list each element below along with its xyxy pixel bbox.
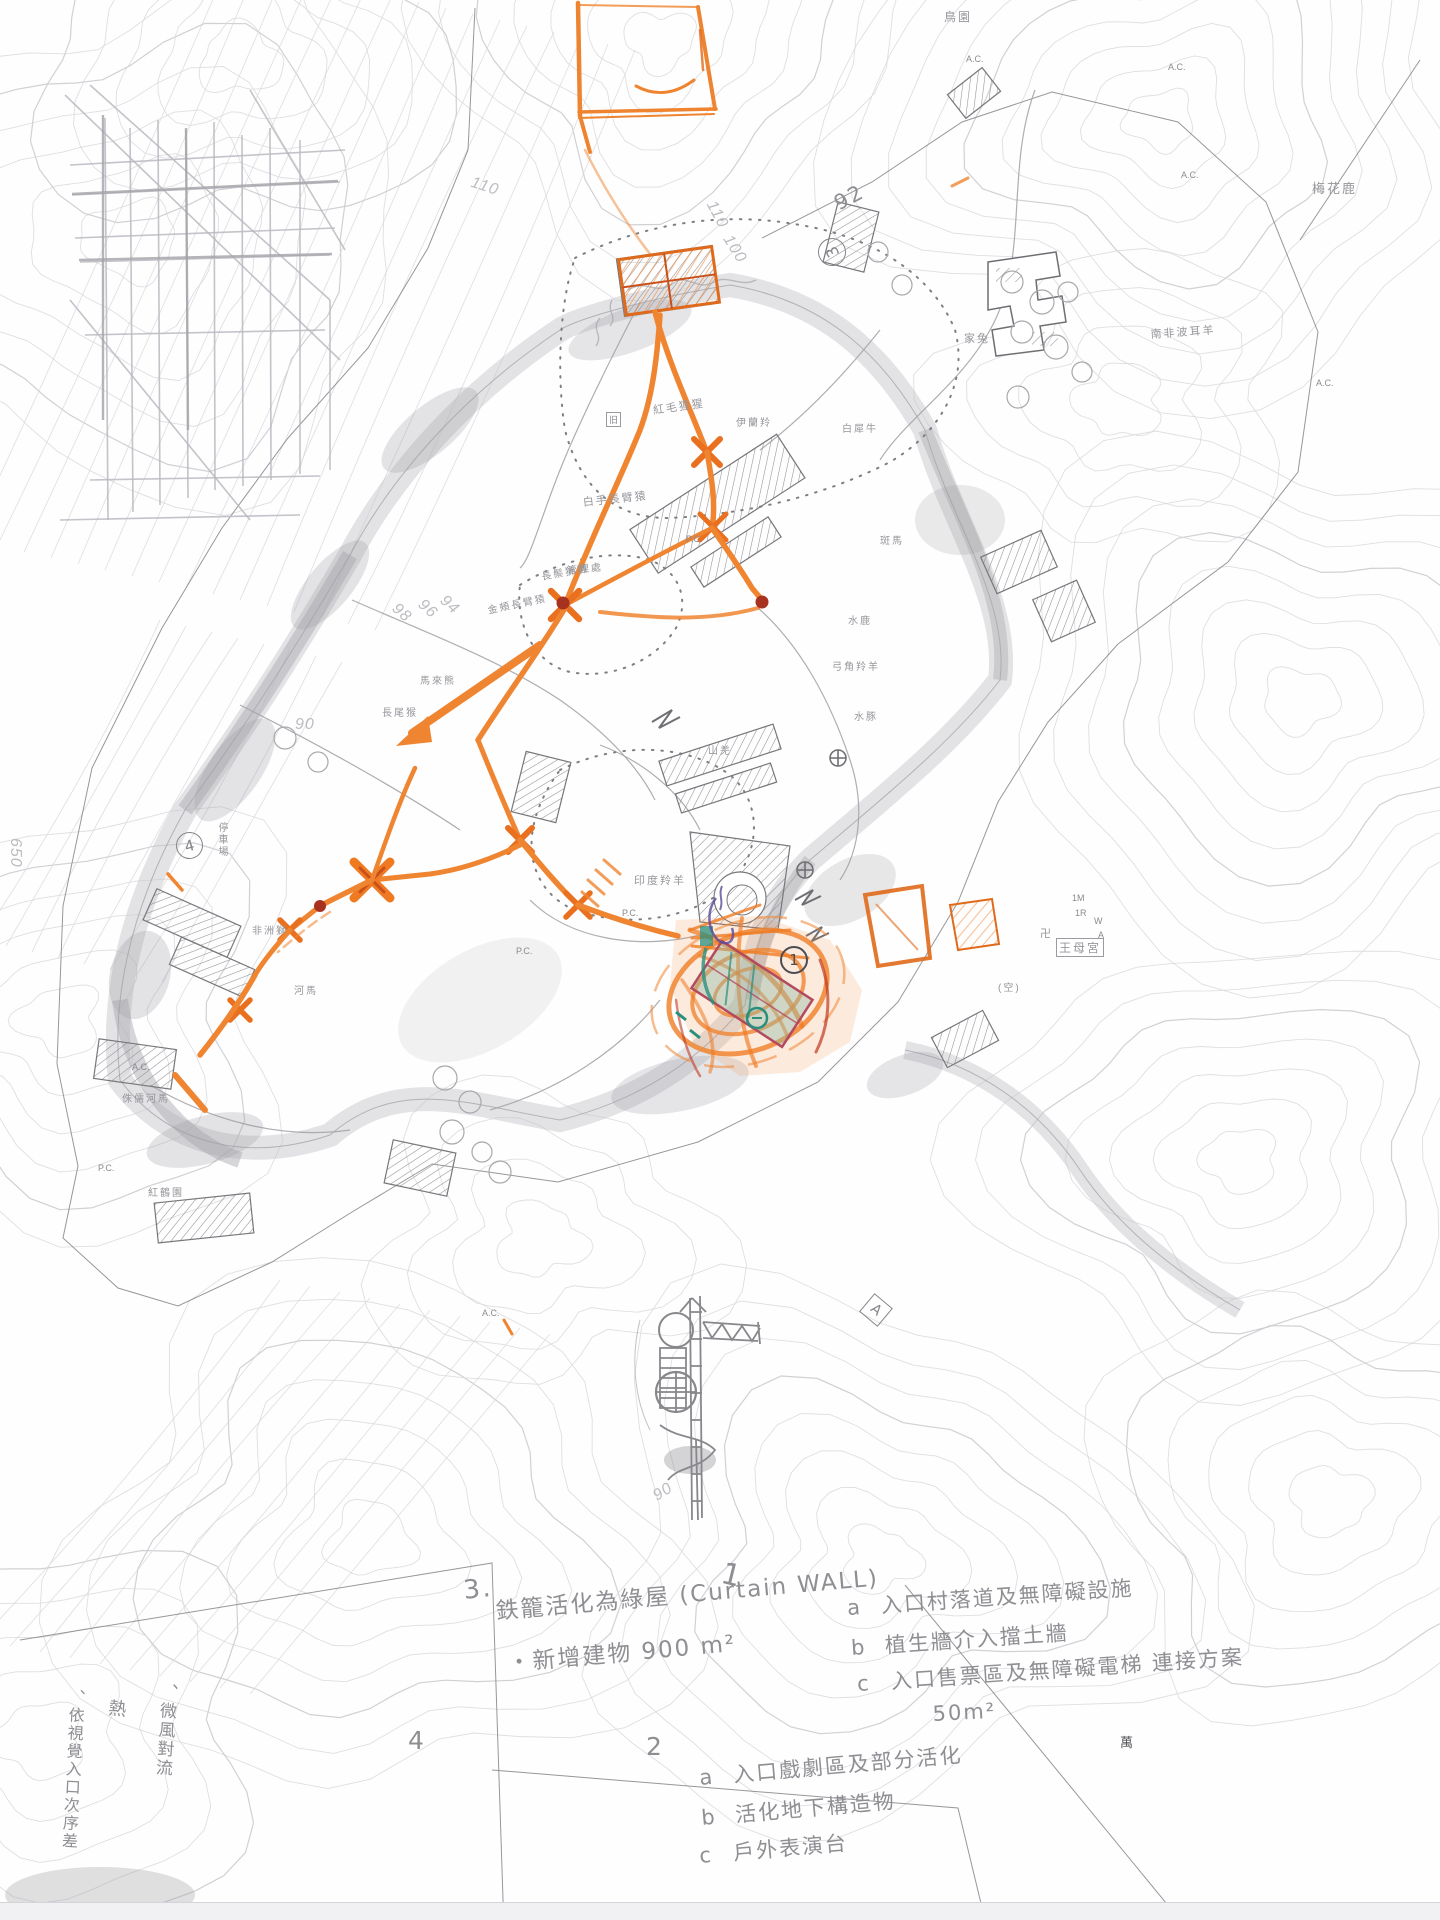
paper-edge xyxy=(0,1902,1440,1920)
list-1-text-a: 入口村落道及無障礙設施 xyxy=(880,1576,1134,1618)
circled-number-1: 1 xyxy=(780,946,808,974)
note-4-number: 4 xyxy=(408,1726,426,1755)
circled-number-4: 4 xyxy=(173,829,206,862)
corner-character: 萬 xyxy=(1120,1732,1135,1751)
list-2-row-a: a入口戲劇區及部分活化 xyxy=(698,1739,964,1792)
list-1-row-a: a入口村落道及無障礙設施 xyxy=(846,1572,1134,1622)
handwritten-annotations: 1 3. 鉄籠活化為綠屋 (Curtain WALL) ・新增建物 900 m²… xyxy=(0,0,1440,1920)
list-1-key-a: a xyxy=(846,1594,882,1620)
boxed-letter-a: A xyxy=(859,1293,893,1327)
left-note-1: 、微風對流 xyxy=(149,1682,181,1779)
site-plan-sheet: 鳥園梅花鹿家兔南非波耳羊紅毛猩猩白手長臂猿伊蘭羚白犀牛長鬃狒狒金頰長臂猿馬來熊長… xyxy=(0,0,1440,1920)
list-1-area: 50m² xyxy=(932,1699,997,1726)
left-note-3: 、依視覺入口次序差 xyxy=(56,1688,88,1851)
list-2-row-c: c戶外表演台 xyxy=(698,1827,849,1870)
left-note-2: 熱 xyxy=(107,1694,130,1722)
note-3-number: 3. xyxy=(462,1573,494,1606)
elevation-note-92: 92 xyxy=(830,180,868,216)
note-3-line1: 鉄籠活化為綠屋 (Curtain WALL) xyxy=(494,1558,880,1625)
note-3-line2: ・新增建物 900 m² xyxy=(506,1624,737,1678)
list-2-number: 2 xyxy=(646,1732,664,1761)
circled-number-3: 3 xyxy=(813,233,850,270)
list-2-row-b: b活化地下構造物 xyxy=(700,1785,897,1832)
